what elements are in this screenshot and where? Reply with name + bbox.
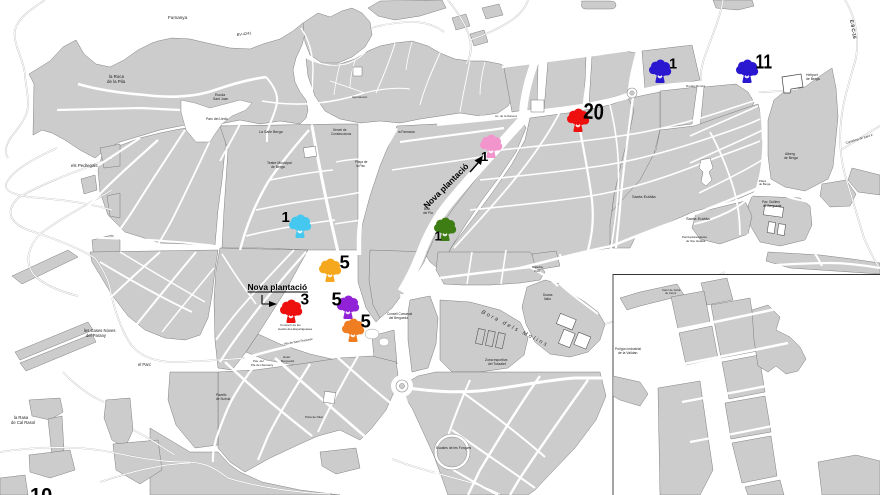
svg-text:de Berga: de Berga <box>784 156 798 160</box>
svg-text:de la Pila: de la Pila <box>107 79 126 84</box>
svg-text:de Sta. Eulàlia: de Sta. Eulàlia <box>686 239 706 243</box>
svg-text:Construccions: Construccions <box>331 132 352 136</box>
svg-text:Pista de Nital: Pista de Nital <box>305 415 323 419</box>
svg-text:la Pau: la Pau <box>356 164 365 168</box>
svg-text:Escales de les Forques: Escales de les Forques <box>436 446 472 450</box>
svg-text:del Pla: del Pla <box>423 211 433 215</box>
svg-text:3: 3 <box>301 292 310 309</box>
svg-text:els Pedregals: els Pedregals <box>71 163 98 168</box>
svg-text:Fumanya: Fumanya <box>168 15 188 20</box>
svg-text:Civil: Civil <box>534 269 540 273</box>
svg-text:1: 1 <box>481 149 488 164</box>
svg-text:10: 10 <box>30 485 52 495</box>
svg-text:Sant Joan: Sant Joan <box>213 97 228 101</box>
svg-text:de Cal Rasol: de Cal Rasol <box>11 420 35 425</box>
svg-text:de la Valldan: de la Valldan <box>618 351 637 355</box>
svg-text:del Parany: del Parany <box>86 333 107 338</box>
svg-text:Nova plantació: Nova plantació <box>248 282 308 292</box>
svg-text:Av. de la Rasera: Av. de la Rasera <box>495 114 517 118</box>
svg-text:20: 20 <box>583 99 605 125</box>
svg-text:La Salle Berga: La Salle Berga <box>259 130 283 134</box>
svg-text:Ajuntament: Ajuntament <box>352 95 367 99</box>
svg-text:Santa Eulàlia: Santa Eulàlia <box>686 216 710 221</box>
svg-text:de Berga: de Berga <box>271 165 285 169</box>
svg-text:5: 5 <box>361 311 371 332</box>
svg-text:Gestió des Espartiguases: Gestió des Espartiguases <box>278 327 313 331</box>
svg-text:Pla de l'Alemany: Pla de l'Alemany <box>251 363 274 367</box>
svg-text:el Parc: el Parc <box>138 362 151 367</box>
svg-text:1: 1 <box>435 229 442 244</box>
svg-text:5: 5 <box>340 252 350 273</box>
svg-text:del Berguedà: del Berguedà <box>389 316 408 320</box>
svg-text:1: 1 <box>282 209 290 226</box>
svg-text:de Berguedà: de Berguedà <box>763 204 781 208</box>
svg-text:la Farmacia: la Farmacia <box>398 130 415 134</box>
svg-text:Parc del Lledó: Parc del Lledó <box>206 117 228 121</box>
svg-text:de Berga: de Berga <box>759 182 771 186</box>
svg-text:Italia: Italia <box>544 297 551 301</box>
svg-text:de Suècia: de Suècia <box>216 397 230 401</box>
svg-text:11: 11 <box>756 52 773 74</box>
svg-text:Santa Eulàlia: Santa Eulàlia <box>632 194 656 199</box>
svg-text:5: 5 <box>332 289 342 310</box>
svg-text:1: 1 <box>669 57 677 73</box>
svg-text:del Tossalet: del Tossalet <box>488 362 506 366</box>
svg-text:Ronda Moreta: Ronda Moreta <box>686 84 705 88</box>
svg-text:de Berga: de Berga <box>806 77 820 81</box>
svg-text:de Cercs: de Cercs <box>665 291 677 295</box>
svg-text:Berguedà: Berguedà <box>281 359 294 363</box>
